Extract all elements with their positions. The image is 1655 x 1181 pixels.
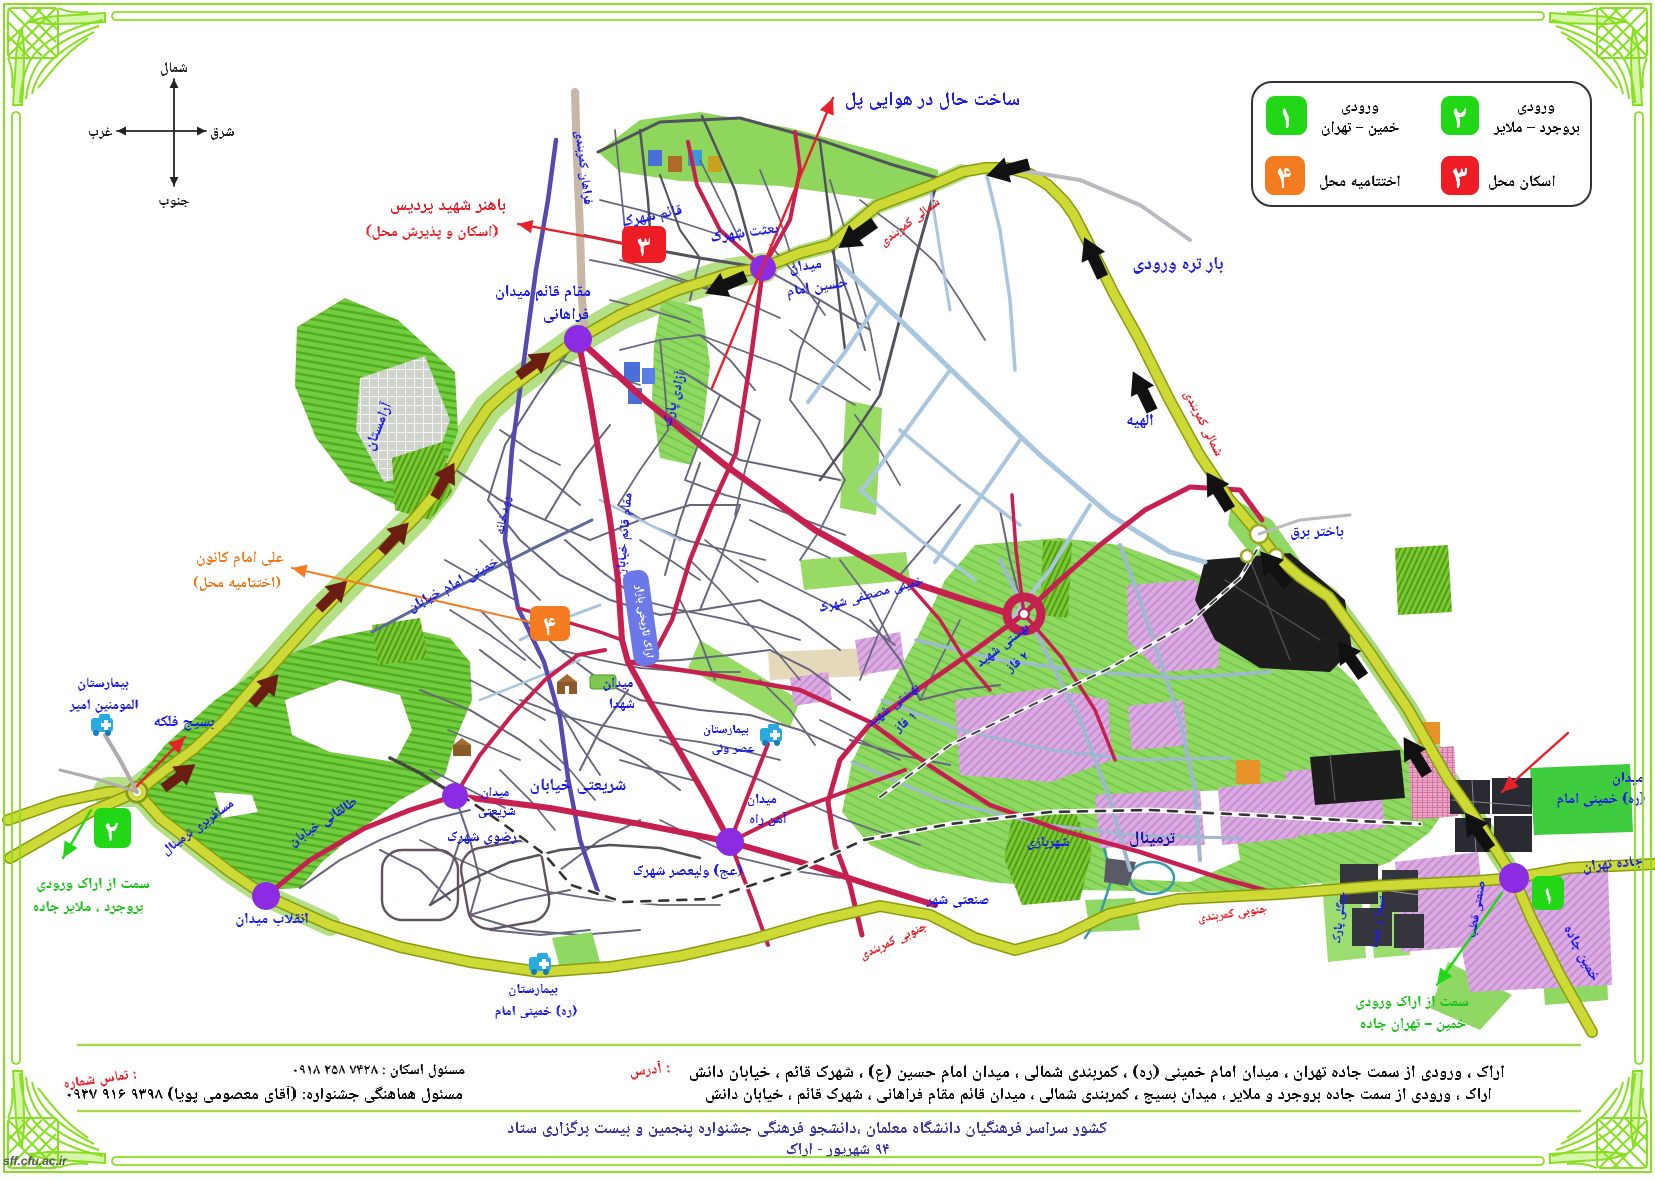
svg-text:sff.cfu.ac.ir: sff.cfu.ac.ir bbox=[3, 1154, 68, 1168]
